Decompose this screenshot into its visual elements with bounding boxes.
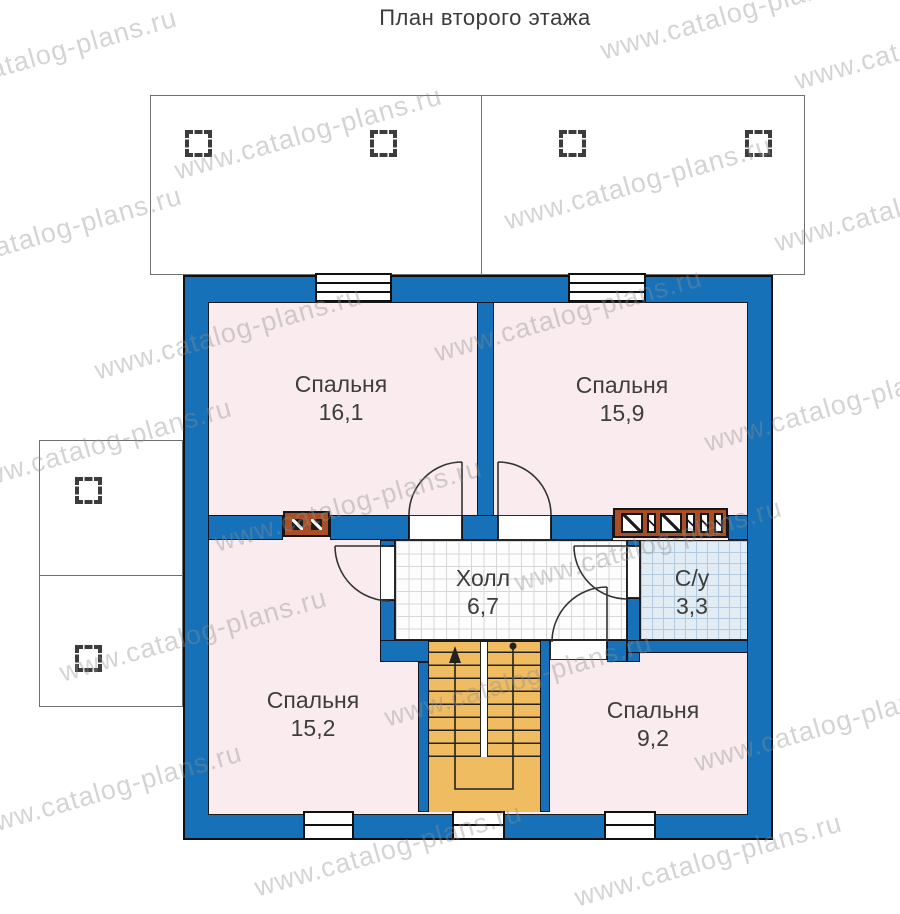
vent-shaft-block <box>283 511 330 537</box>
vent-flue-icon <box>292 519 303 530</box>
room-name: Спальня <box>267 686 359 714</box>
roof-window-mark <box>75 477 102 504</box>
stair-divider <box>480 640 488 758</box>
wall-segment <box>477 302 494 540</box>
door-opening <box>550 640 607 660</box>
room-area: 16,1 <box>295 398 387 426</box>
vent-flue-icon <box>660 513 682 533</box>
watermark: www.catalog-plans.ru <box>791 0 900 97</box>
roof-window-mark <box>745 130 772 157</box>
stair-landing <box>429 757 540 812</box>
roof-outline-left <box>39 440 183 707</box>
wall-segment <box>540 640 550 812</box>
roof-window-mark <box>370 130 397 157</box>
roof-window-mark <box>185 130 212 157</box>
room-label-bathroom: С/у 3,3 <box>675 564 710 620</box>
room-label-hall: Холл 6,7 <box>456 564 510 620</box>
vent-flue-icon <box>700 513 709 533</box>
window-symbol <box>604 811 656 840</box>
stair-flight-right <box>488 640 540 757</box>
room-name: Холл <box>456 564 510 592</box>
roof-window-mark <box>75 645 102 672</box>
page-title: План второго этажа <box>280 5 690 31</box>
room-area: 15,2 <box>267 714 359 742</box>
chimney-vent-block <box>613 508 728 538</box>
wall-segment <box>607 640 627 662</box>
roof-outline-top <box>150 95 805 275</box>
room-area: 9,2 <box>607 724 699 752</box>
wall-segment <box>418 662 429 812</box>
wall-segment <box>208 515 283 540</box>
room-label-bedroom-15-9: Спальня 15,9 <box>576 371 668 427</box>
wall-segment <box>380 640 429 662</box>
room-name: Спальня <box>607 696 699 724</box>
vent-flue-icon <box>686 513 695 533</box>
room-name: Спальня <box>576 371 668 399</box>
door-opening <box>498 515 551 540</box>
room-label-bedroom-15-2: Спальня 15,2 <box>267 686 359 742</box>
room-name: Спальня <box>295 370 387 398</box>
roof-ridge-line <box>40 575 184 576</box>
roof-window-mark <box>559 130 586 157</box>
room-area: 15,9 <box>576 399 668 427</box>
vent-flue-icon <box>647 513 656 533</box>
room-name: С/у <box>675 564 710 592</box>
wall-segment <box>462 515 498 540</box>
wall-segment <box>627 640 748 653</box>
wall-segment <box>728 515 748 540</box>
window-symbol <box>303 811 354 840</box>
door-opening <box>380 546 395 600</box>
floor-plan-page: { "title": "План второго этажа", "waterm… <box>0 0 900 900</box>
room-label-bedroom-9-2: Спальня 9,2 <box>607 696 699 752</box>
roof-ridge-line <box>481 96 482 276</box>
room-area: 6,7 <box>456 592 510 620</box>
vent-flue-icon <box>621 513 643 533</box>
vent-flue-icon <box>714 513 723 533</box>
watermark: www.catalog-plans.ru <box>0 2 181 108</box>
room-area: 3,3 <box>675 592 710 620</box>
window-symbol <box>452 811 505 840</box>
wall-segment <box>330 515 409 540</box>
stair-flight-left <box>429 640 480 757</box>
hall-tiled-floor <box>395 540 627 640</box>
room-label-bedroom-16-1: Спальня 16,1 <box>295 370 387 426</box>
door-opening <box>627 546 640 598</box>
wall-segment <box>551 515 613 540</box>
door-opening <box>409 515 462 540</box>
window-symbol <box>568 273 646 302</box>
window-symbol <box>315 273 392 302</box>
vent-flue-icon <box>311 519 322 530</box>
